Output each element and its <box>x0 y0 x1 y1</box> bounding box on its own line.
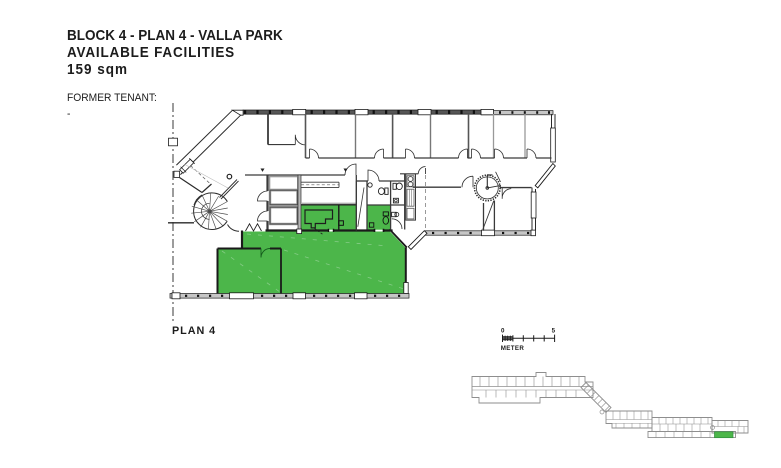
svg-text:METER: METER <box>501 345 525 352</box>
svg-text:0: 0 <box>501 328 505 335</box>
svg-text:5: 5 <box>552 328 556 335</box>
